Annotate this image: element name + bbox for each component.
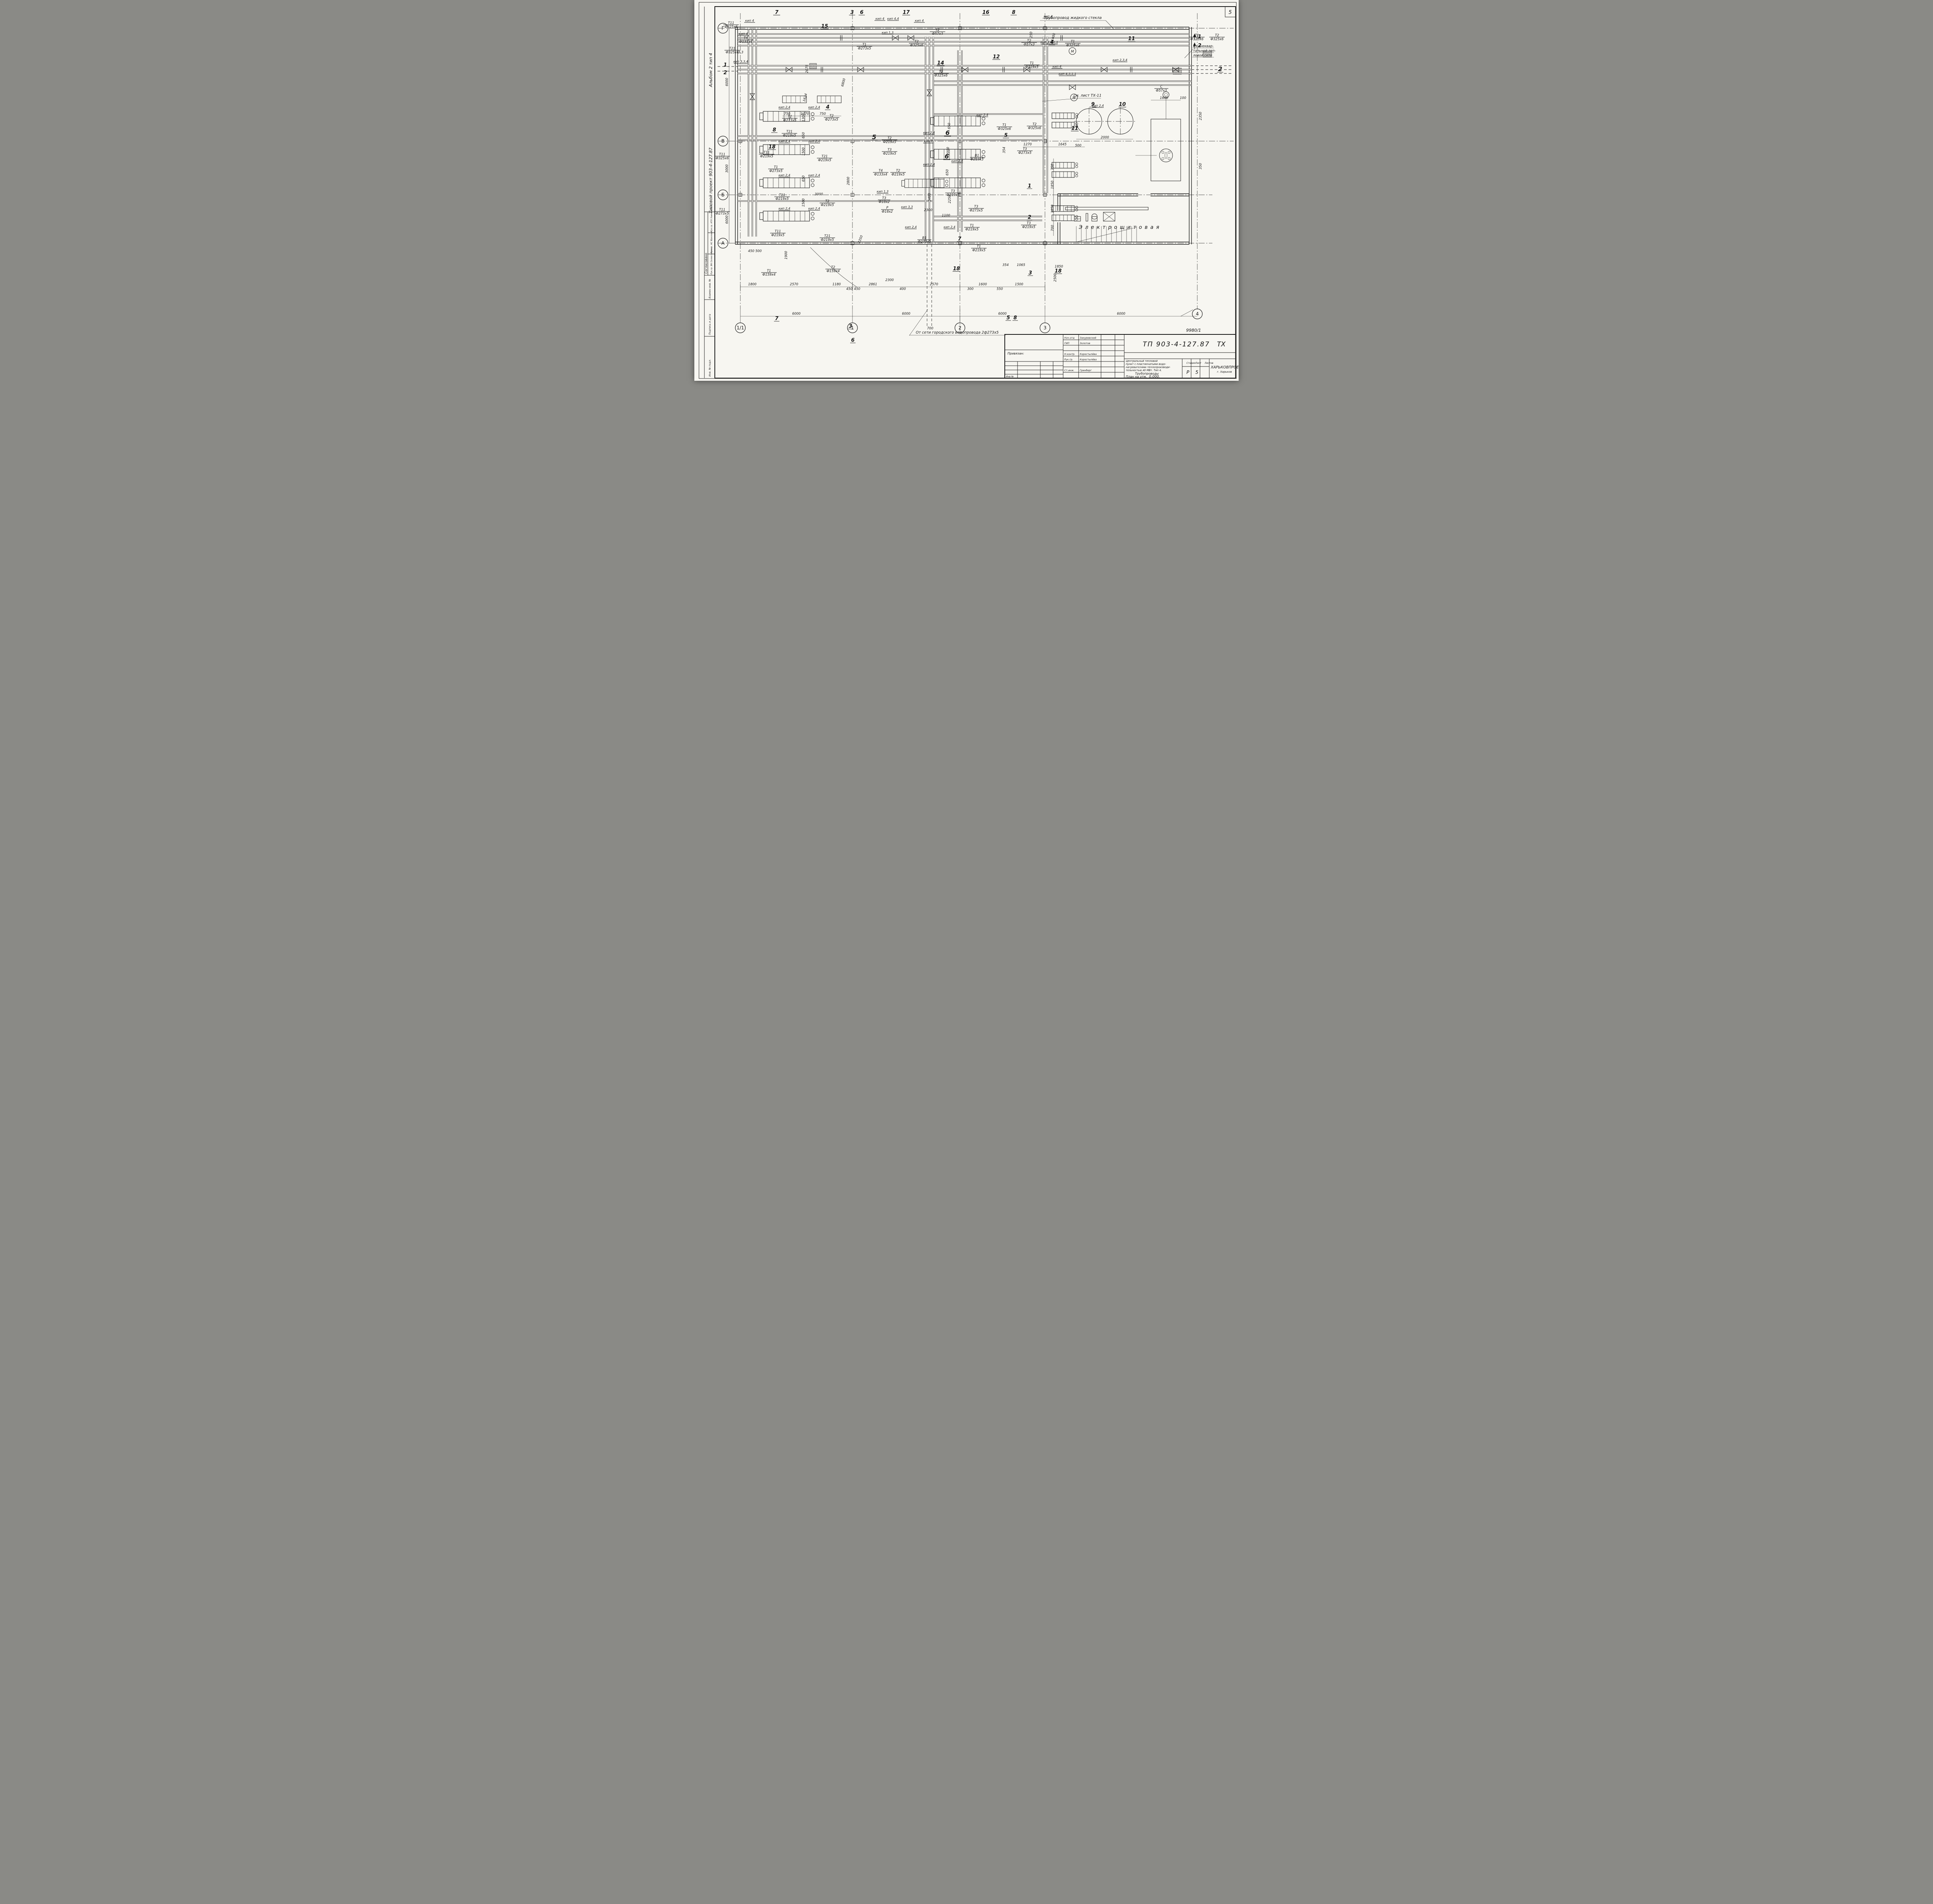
svg-text:Ф325х6: Ф325х6 (1028, 126, 1042, 130)
svg-text:Ф273х5: Ф273х5 (716, 212, 729, 216)
svg-text:1850: 1850 (1051, 205, 1055, 213)
desc-line: нагревателями теплопроизводи- (1126, 366, 1171, 369)
svg-text:7: 7 (958, 236, 961, 242)
svg-text:Ф133х4: Ф133х4 (874, 173, 887, 177)
svg-text:1: 1 (1198, 34, 1201, 40)
svg-text:Т21: Т21 (822, 155, 828, 159)
svg-text:3,3: 3,3 (738, 51, 743, 55)
org-name: ХАРЬКОВПРОЕКТ (1210, 365, 1239, 370)
svg-text:6: 6 (860, 10, 863, 15)
svg-text:Т2: Т2 (825, 199, 830, 203)
dimension-lines (729, 28, 1197, 316)
svg-text:Ф219х5: Ф219х5 (821, 203, 834, 207)
svg-text:11: 11 (1128, 36, 1135, 42)
stamp-podpis: Подпись и дата (708, 314, 711, 335)
svg-text:кип 2,4: кип 2,4 (923, 163, 935, 166)
svg-text:5: 5 (1006, 315, 1010, 321)
svg-text:Т1: Т1 (1002, 123, 1007, 127)
svg-text:Т3: Т3 (888, 148, 892, 152)
svg-text:5400: 5400 (928, 193, 932, 201)
svg-text:11: 11 (1071, 126, 1078, 131)
annotations: Трубопровод жидкого стекла От сети город… (909, 16, 1215, 335)
svg-text:кип 2,4: кип 2,4 (808, 106, 820, 109)
svg-text:Т4: Т4 (744, 36, 748, 40)
svg-text:1500: 1500 (802, 198, 806, 207)
dimension-texts: 6000 3000 6000 6000 6000 6000 6000 1800 … (725, 32, 1203, 331)
org-city: г. Харьков (1217, 370, 1232, 373)
svg-text:кип 2,4: кип 2,4 (779, 106, 791, 109)
svg-text:В1: В1 (975, 154, 979, 158)
svg-text:Т2: Т2 (1027, 39, 1031, 43)
svg-text:А: А (721, 240, 725, 246)
project-code-suffix: ТХ (1217, 341, 1226, 348)
svg-text:300: 300 (967, 287, 973, 291)
stage-value: Р (1186, 370, 1190, 375)
svg-text:кип 4: кип 4 (739, 32, 748, 36)
svg-text:100: 100 (1180, 96, 1186, 100)
svg-text:кип 7: кип 7 (924, 140, 933, 143)
svg-text:Т11: Т11 (719, 153, 725, 157)
svg-text:6000: 6000 (902, 312, 910, 316)
title-block: 9980/1 Нач.отд Закуревский ГИП Золотов Н… (1005, 328, 1239, 379)
svg-text:1: 1 (1028, 183, 1031, 189)
svg-text:С: С (1160, 85, 1163, 89)
project-code: ТП 903-4-127.87 (1143, 341, 1210, 348)
svg-text:500: 500 (755, 249, 762, 253)
svg-text:Т2: Т2 (831, 266, 835, 269)
svg-text:Ф57х3: Ф57х3 (1156, 89, 1167, 93)
svg-text:Ф57х3: Ф57х3 (1024, 43, 1035, 47)
liquid-glass-note: Трубопровод жидкого стекла (1044, 16, 1101, 20)
corner-sheet-number: 5 (1229, 10, 1232, 15)
svg-text:кип 4: кип 4 (745, 19, 754, 22)
svg-text:1065: 1065 (1017, 263, 1025, 267)
svg-text:6: 6 (851, 338, 854, 343)
svg-text:1500: 1500 (1015, 283, 1023, 286)
plan-elevation: План на отм. (1126, 375, 1147, 378)
svg-text:1: 1 (723, 62, 727, 68)
svg-text:4: 4 (825, 104, 829, 110)
svg-text:Ф219х5: Ф219х5 (972, 249, 985, 252)
svg-text:Ф325х6: Ф325х6 (1210, 38, 1224, 41)
svg-text:Ф219х5: Ф219х5 (783, 134, 796, 138)
svg-text:1624: 1624 (802, 93, 808, 102)
svg-text:3: 3 (1043, 325, 1047, 331)
svg-text:Ф219х5: Ф219х5 (818, 159, 831, 162)
svg-text:2: 2 (958, 325, 961, 331)
svg-text:Т21: Т21 (824, 234, 830, 238)
svg-text:Т11: Т11 (775, 230, 781, 234)
svg-text:1645: 1645 (1058, 143, 1067, 147)
svg-text:Ф219х5: Ф219х5 (1025, 65, 1038, 69)
svg-text:750: 750 (820, 112, 826, 116)
blueprint-sheet: 5 Типовой проект 903-4-127.87 Альбом 2 т… (694, 0, 1239, 381)
sheet-number: 5 (1195, 370, 1198, 375)
svg-text:18: 18 (1055, 268, 1062, 274)
svg-text:15: 15 (821, 24, 828, 29)
svg-text:Т1: Т1 (977, 245, 981, 249)
staff-name: Коростылёва (1080, 358, 1097, 361)
svg-text:6800: 6800 (840, 78, 846, 87)
svg-text:Ф18х2: Ф18х2 (879, 200, 890, 204)
svg-text:5: 5 (872, 133, 876, 141)
staff-role: Рук.гр. (1064, 358, 1073, 361)
staff-role: Н.контр. (1064, 353, 1075, 356)
svg-text:Ф219х5: Ф219х5 (776, 197, 789, 201)
stamp-inv: Инв. № подл. (708, 359, 711, 377)
svg-text:Т11: Т11 (779, 193, 785, 197)
svg-text:Ф273х5: Ф273х5 (858, 47, 871, 51)
svg-text:700: 700 (1051, 225, 1055, 231)
svg-text:6000: 6000 (998, 312, 1007, 316)
svg-text:Ф219х5: Ф219х5 (970, 158, 984, 162)
svg-text:кип 3,3,4: кип 3,3,4 (733, 60, 748, 63)
svg-text:Т11: Т11 (719, 208, 725, 212)
svg-text:500: 500 (1075, 144, 1081, 148)
stamp-vzamen: Взамен инв. № (708, 279, 711, 298)
svg-text:2300: 2300 (924, 208, 932, 212)
svg-text:8: 8 (772, 127, 776, 133)
svg-text:Т2: Т2 (1215, 34, 1219, 38)
svg-text:тальной теп-: тальной теп- (1193, 49, 1215, 53)
svg-text:кип 1,3: кип 1,3 (882, 31, 894, 34)
svg-text:Т2: Т2 (830, 114, 834, 118)
svg-text:кип 2,4: кип 2,4 (779, 207, 791, 210)
svg-text:2350: 2350 (857, 235, 864, 244)
svg-text:кип 2,4: кип 2,4 (808, 140, 820, 143)
svg-text:Ф219х5: Ф219х5 (883, 140, 896, 144)
svg-text:2000: 2000 (1101, 136, 1109, 140)
svg-text:Ф325х6: Ф325х6 (1066, 44, 1080, 48)
svg-text:кип 2,4: кип 2,4 (779, 140, 791, 143)
svg-text:кип 4: кип 4 (915, 19, 924, 22)
svg-text:4: 4 (1196, 311, 1199, 317)
svg-text:Б: Б (721, 192, 724, 198)
svg-text:450: 450 (854, 287, 860, 291)
svg-text:12: 12 (993, 54, 1000, 60)
room-label: Электрощитовая (1079, 225, 1162, 230)
svg-text:7: 7 (775, 10, 779, 15)
svg-text:Ф325х6: Ф325х6 (998, 127, 1011, 131)
svg-text:14: 14 (937, 60, 944, 66)
svg-text:Ф219х5: Ф219х5 (771, 234, 784, 237)
inventory-label: Инв № (1006, 375, 1014, 378)
staff-role: ГИП (1064, 342, 1069, 345)
svg-text:2300: 2300 (885, 278, 894, 282)
svg-text:кип 2,4: кип 2,4 (808, 174, 820, 177)
staff-name: Коростылёва (1080, 353, 1097, 356)
svg-text:В: В (721, 138, 724, 144)
svg-text:Т1: Т1 (1030, 61, 1034, 65)
svg-text:Р: Р (886, 206, 888, 210)
svg-text:5: 5 (1004, 133, 1007, 138)
svg-text:Т3: Т3 (951, 189, 955, 193)
svg-text:450: 450 (846, 287, 852, 291)
svg-text:Ф273х5: Ф273х5 (825, 118, 838, 122)
motor-symbol: М (1071, 50, 1074, 54)
svg-text:550: 550 (997, 287, 1003, 291)
svg-text:кип 4: кип 4 (1053, 65, 1062, 68)
svg-text:Ф219х5: Ф219х5 (821, 238, 834, 242)
svg-text:6: 6 (945, 129, 949, 136)
svg-text:2350: 2350 (1199, 112, 1203, 120)
binding-label: Привязан: (1007, 352, 1024, 355)
svg-text:16: 16 (982, 10, 989, 15)
svg-text:кип 2,4: кип 2,4 (808, 207, 820, 210)
svg-text:Т1: Т1 (767, 269, 771, 273)
staff-role: Ст.инж. (1064, 369, 1074, 372)
svg-text:10: 10 (1119, 102, 1126, 107)
svg-text:Т11: Т11 (764, 151, 770, 155)
svg-text:3: 3 (1028, 270, 1032, 276)
svg-text:354: 354 (1002, 263, 1009, 267)
sheet-frame: 5 (699, 2, 1236, 378)
svg-text:Ф325х6: Ф325х6 (934, 74, 948, 78)
svg-text:кип 4: кип 4 (876, 17, 885, 20)
svg-text:650: 650 (946, 169, 949, 176)
svg-text:Т1: Т1 (863, 43, 867, 47)
svg-text:18: 18 (953, 266, 960, 272)
section-markers: 7 3 6 15 17 16 8 4 14 12 11 11 9 10 5 5 … (723, 10, 1223, 343)
svg-text:Т2: Т2 (1033, 123, 1037, 126)
svg-text:Т21: Т21 (729, 47, 735, 51)
desc-line: тельностью 40 МВт. Тип 4. (1126, 369, 1162, 372)
svg-text:650: 650 (802, 176, 806, 182)
svg-text:3: 3 (850, 10, 854, 15)
svg-text:кип 2,4: кип 2,4 (944, 225, 956, 229)
svg-text:6000: 6000 (1117, 312, 1125, 316)
drawing-canvas: 5 Типовой проект 903-4-127.87 Альбом 2 т… (694, 0, 1239, 381)
svg-text:2: 2 (723, 70, 727, 76)
city-water-note: От сети городского водопровода 2ф273х5 (916, 331, 999, 335)
svg-text:кип 1,3: кип 1,3 (877, 190, 889, 193)
svg-text:Ф219х5: Ф219х5 (760, 155, 773, 159)
plan-elevation-value: 0,000. (1149, 375, 1160, 379)
svg-text:350: 350 (1199, 163, 1203, 169)
svg-text:Т4: Т4 (879, 169, 883, 173)
svg-text:Ф325х6: Ф325х6 (726, 51, 739, 55)
doc-number: 9980/1 (1186, 328, 1201, 333)
svg-text:700: 700 (927, 327, 933, 331)
svg-text:Ф273х5: Ф273х5 (769, 169, 782, 173)
svg-text:Т2: Т2 (936, 28, 940, 32)
svg-text:Ф325х6: Ф325х6 (724, 25, 738, 29)
svg-text:6000: 6000 (725, 78, 729, 86)
svg-text:Ф219х5: Ф219х5 (1022, 225, 1035, 229)
staff-name: Золотов (1080, 342, 1090, 345)
svg-text:Ф325х6: Ф325х6 (910, 44, 924, 48)
svg-text:Т1: Т1 (970, 224, 974, 228)
svg-text:Ф219х5: Ф219х5 (891, 173, 905, 177)
svg-text:8: 8 (1013, 315, 1017, 321)
svg-text:1600: 1600 (1160, 96, 1168, 100)
staff-name: Закуревский (1080, 337, 1096, 339)
svg-text:3000: 3000 (725, 164, 729, 173)
svg-text:Ф159х4: Ф159х4 (827, 269, 840, 273)
svg-text:кип 4,4: кип 4,4 (887, 17, 899, 20)
svg-text:6000: 6000 (792, 312, 801, 316)
svg-text:Ф325х6: Ф325х6 (716, 157, 729, 160)
svg-text:450: 450 (748, 249, 754, 253)
agreed-label: Согласовано (704, 253, 708, 274)
svg-text:1: 1 (851, 325, 854, 331)
svg-text:кип 2,4: кип 2,4 (951, 159, 963, 163)
svg-text:Ф57х3: Ф57х3 (932, 32, 943, 36)
svg-text:Т2: Т2 (915, 40, 919, 44)
svg-text:Т3: Т3 (974, 205, 978, 209)
svg-text:кип 2,4: кип 2,4 (923, 131, 935, 135)
svg-text:9: 9 (1091, 102, 1094, 107)
svg-text:Т11: Т11 (728, 21, 734, 25)
svg-text:2861: 2861 (869, 283, 877, 286)
svg-text:Т1: Т1 (1071, 40, 1075, 44)
svg-text:Т3: Т3 (1023, 147, 1027, 151)
svg-text:кип 2,4: кип 2,4 (977, 113, 989, 117)
svg-text:750: 750 (1051, 164, 1055, 170)
svg-text:Из внеквар-: Из внеквар- (1193, 44, 1214, 48)
svg-text:Т1: Т1 (774, 165, 778, 169)
agreed-row-vk: Рук.гр. ВК Селистинова (711, 247, 713, 274)
svg-text:6: 6 (944, 153, 949, 160)
svg-text:1100: 1100 (942, 214, 950, 218)
svg-text:кип 2,3,4: кип 2,3,4 (1113, 58, 1127, 62)
svg-text:1900: 1900 (784, 251, 788, 259)
svg-text:1600: 1600 (978, 283, 987, 286)
svg-text:Т2: Т2 (788, 115, 792, 119)
svg-text:1300: 1300 (802, 113, 806, 122)
svg-text:В1: В1 (922, 236, 926, 240)
svg-text:650: 650 (802, 132, 806, 138)
svg-text:1850: 1850 (1051, 181, 1055, 189)
svg-text:2500: 2500 (1053, 273, 1057, 282)
svg-text:Ф219х5: Ф219х5 (965, 228, 978, 232)
svg-text:2: 2 (1218, 65, 1222, 73)
svg-text:Ф325х6: Ф325х6 (1190, 38, 1204, 41)
svg-text:Т3: Т3 (1027, 222, 1031, 225)
svg-text:400: 400 (900, 287, 906, 291)
svg-text:кип 3,3: кип 3,3 (901, 205, 913, 209)
svg-text:2570: 2570 (790, 283, 798, 286)
svg-text:1270: 1270 (1023, 143, 1032, 147)
svg-text:3000: 3000 (815, 193, 823, 196)
sheet-label: Лист (1195, 362, 1202, 365)
svg-text:2076: 2076 (805, 65, 809, 73)
sheets-label: Листов (1204, 362, 1214, 365)
svg-text:650: 650 (948, 123, 951, 129)
svg-text:кип 4,3,1,1: кип 4,3,1,1 (1059, 72, 1076, 76)
svg-text:6000: 6000 (725, 215, 729, 224)
svg-text:Т2: Т2 (896, 169, 900, 173)
svg-text:Ф133х4: Ф133х4 (739, 40, 752, 44)
svg-text:4: 4 (1050, 39, 1053, 45)
svg-text:Ф273х5: Ф273х5 (783, 119, 796, 123)
svg-text:кип 3,4,1,1: кип 3,4,1,1 (1040, 41, 1058, 44)
stage-label: Стадия (1186, 362, 1195, 365)
svg-text:Г: Г (721, 26, 724, 31)
tanks-and-equipment (1065, 92, 1181, 242)
desc-line: пункт с пластинчатыми водо- (1126, 363, 1166, 366)
staff-name: Гринберг (1080, 369, 1092, 372)
svg-text:Ф219х5: Ф219х5 (946, 193, 960, 197)
svg-text:2570: 2570 (930, 283, 938, 286)
svg-text:Ф273х5: Ф273х5 (918, 240, 931, 244)
svg-text:Т2: Т2 (888, 136, 892, 140)
svg-text:18: 18 (769, 144, 776, 150)
svg-text:1800: 1800 (748, 283, 757, 286)
svg-text:Ф219х5: Ф219х5 (883, 152, 896, 156)
svg-text:кип 2,4: кип 2,4 (779, 174, 791, 177)
svg-text:1500: 1500 (802, 147, 806, 156)
desc-line: Центральный тепловой (1126, 360, 1158, 363)
svg-text:17: 17 (903, 10, 910, 15)
svg-text:2800: 2800 (847, 177, 851, 185)
svg-text:8: 8 (1012, 10, 1015, 15)
svg-text:Ф273х5: Ф273х5 (970, 209, 983, 213)
svg-text:ловой сети: ловой сети (1193, 54, 1212, 58)
svg-text:2: 2 (1028, 215, 1031, 220)
album-title-vertical: Альбом 2 тип 4 (708, 53, 713, 87)
svg-text:Ф159х4: Ф159х4 (762, 273, 776, 277)
staff-role: Нач.отд (1064, 337, 1074, 339)
svg-text:кип 2,4: кип 2,4 (905, 225, 917, 229)
svg-text:Т21: Т21 (786, 130, 793, 134)
svg-text:354: 354 (1002, 147, 1006, 153)
external-network-note: Из внеквар- тальной теп- ловой сети (1192, 44, 1215, 58)
svg-text:1180: 1180 (832, 283, 841, 286)
see-sheet-note: см. лист ТХ-11 (1074, 94, 1101, 98)
svg-text:Т2: Т2 (939, 70, 943, 74)
svg-text:1/1: 1/1 (736, 325, 744, 331)
svg-text:250: 250 (1030, 32, 1033, 38)
svg-text:Ф18х2: Ф18х2 (882, 210, 893, 214)
project-title-vertical: Типовой проект 903-4-127.87 (708, 148, 713, 213)
svg-text:7: 7 (775, 316, 779, 322)
svg-text:Т3: Т3 (882, 196, 886, 200)
left-stamp-column: Типовой проект 903-4-127.87 Альбом 2 тип… (704, 53, 715, 377)
agreed-row-atx: Рук.гр. АТХ Хаимовский (711, 205, 713, 232)
svg-text:Ф273х5: Ф273х5 (1018, 151, 1031, 155)
